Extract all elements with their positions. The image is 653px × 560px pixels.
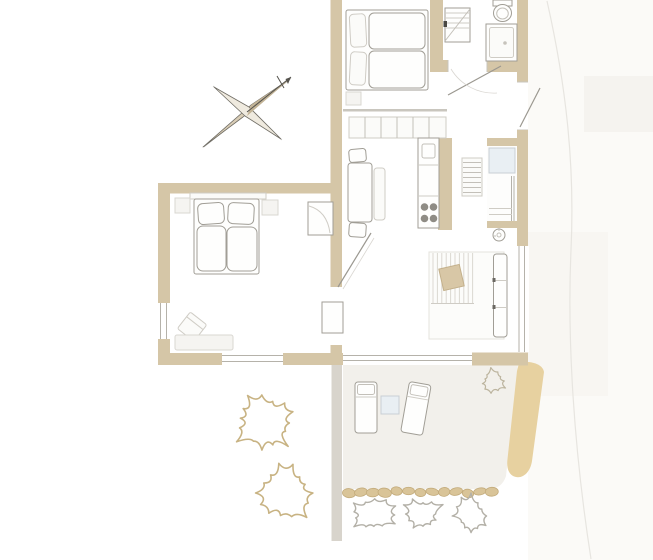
- entry-closet: [487, 146, 517, 221]
- garden-bush-2: [256, 463, 313, 517]
- stepping-stone: [402, 487, 414, 495]
- wall-center-vertical: [331, 0, 343, 193]
- lounger-side-table: [381, 396, 399, 414]
- dining-bench: [374, 168, 385, 220]
- dining-chair-bottom: [349, 222, 367, 237]
- toilet: [493, 0, 512, 22]
- closet-blue-panel: [489, 148, 515, 173]
- window-bedroom2-bottom: [222, 356, 283, 362]
- nightstand-left: [175, 198, 190, 213]
- wardrobe: [308, 202, 333, 235]
- dining-set: [348, 148, 385, 237]
- stepping-stone: [366, 488, 380, 497]
- wall-niche-bottom: [487, 221, 517, 228]
- double-bed-upper: [346, 10, 428, 90]
- coffee-table: [439, 264, 464, 290]
- hedge-bush-1: [354, 499, 396, 527]
- north-arrow-tip: [286, 77, 292, 84]
- pillow: [349, 52, 367, 86]
- sofa-bench: [493, 254, 508, 337]
- pillow: [349, 14, 367, 48]
- pillow: [197, 202, 224, 225]
- hedge-bush-3: [452, 493, 486, 532]
- partition-bedroom1-kitchen: [343, 109, 447, 112]
- stepping-stone: [485, 487, 498, 497]
- pillow: [227, 202, 254, 224]
- shower: [486, 24, 517, 61]
- compass-rose: [203, 76, 291, 147]
- kitchen-counter: [418, 138, 439, 228]
- kitchen-cabinet-row: [349, 117, 446, 138]
- duvet: [197, 226, 226, 271]
- garden-bush-1: [237, 395, 293, 450]
- north-needle: [247, 77, 291, 112]
- glass-living-south: [343, 356, 472, 361]
- floor-plan-svg: [0, 0, 653, 560]
- headboard: [190, 193, 266, 199]
- nightstand-upper: [346, 92, 361, 105]
- wall-shelf: [462, 158, 482, 196]
- side-cabinet: [322, 302, 343, 333]
- window-bedroom2-left: [157, 303, 171, 339]
- wall-right-mid: [517, 130, 528, 246]
- terrace-divider-wall: [332, 365, 343, 541]
- dining-chair-top: [349, 148, 367, 162]
- storage-bench: [175, 335, 233, 350]
- wall-bedroom2-top: [158, 183, 342, 194]
- stepping-stone: [342, 488, 356, 499]
- stepping-stone: [415, 488, 427, 497]
- door-bedroom2-swing: [338, 233, 374, 289]
- window-living-east: [516, 246, 529, 352]
- wall-kitchen-east: [438, 138, 452, 230]
- hedge-bush-2: [404, 499, 444, 528]
- wall-bedroom2-right-lower: [331, 345, 343, 365]
- double-bed-lower: [190, 193, 266, 274]
- duvet: [227, 227, 257, 271]
- floor-lamp: [493, 228, 505, 241]
- wall-bathroom-south-left: [430, 60, 448, 72]
- kitchen-counter-sink-stove: [418, 138, 439, 228]
- bathroom-vanity: [444, 8, 471, 42]
- dining-table: [348, 163, 372, 222]
- wall-bedroom2-bottom-left: [158, 353, 222, 365]
- floor-plan-page: [0, 0, 653, 560]
- living-rug: [429, 252, 504, 339]
- wall-bathroom-divider: [430, 0, 443, 63]
- duvet: [369, 51, 425, 88]
- wall-niche-top: [487, 138, 517, 146]
- nightstand-right: [262, 200, 278, 215]
- balcony-slab-wash: [584, 76, 653, 132]
- sun-lounger-1: [355, 382, 377, 433]
- duvet: [369, 13, 425, 49]
- wall-bedroom2-left-upper: [158, 183, 170, 303]
- wall-south-east: [472, 353, 528, 366]
